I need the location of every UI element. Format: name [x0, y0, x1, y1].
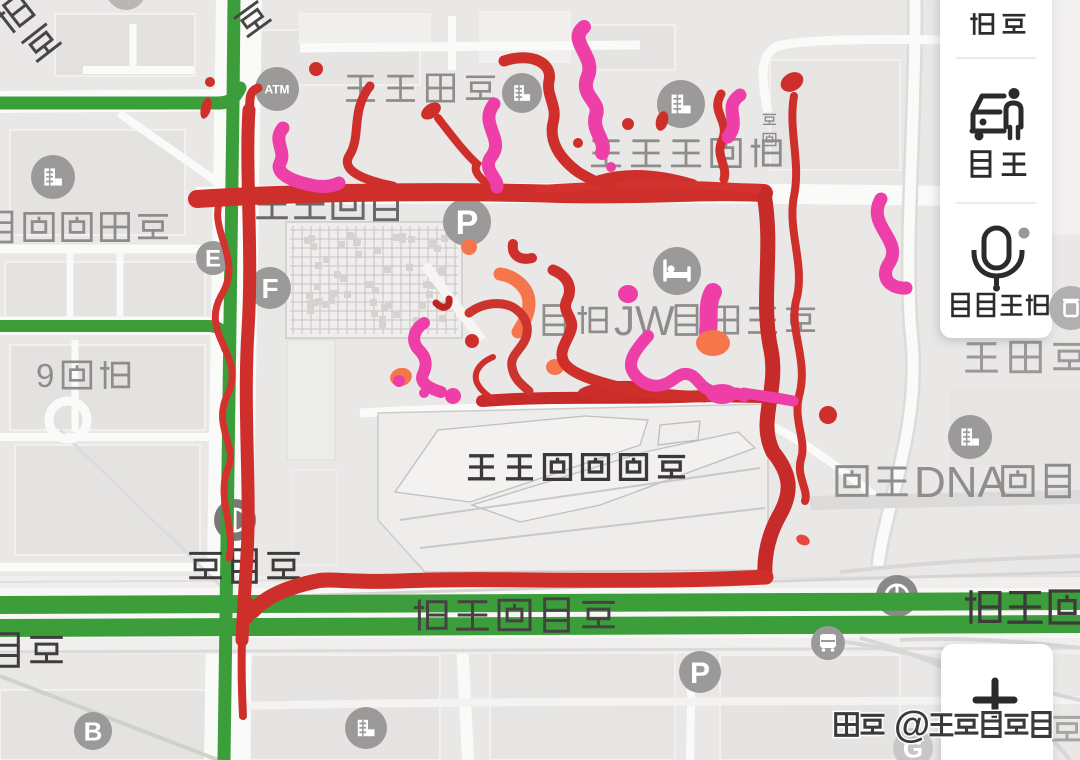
- svg-text:F: F: [261, 273, 278, 304]
- svg-text:DNA: DNA: [914, 458, 1008, 507]
- svg-text:E: E: [205, 246, 221, 273]
- svg-text:P: P: [456, 204, 479, 242]
- svg-text:9: 9: [36, 357, 54, 394]
- svg-text:@: @: [894, 704, 930, 745]
- svg-text:B: B: [84, 716, 103, 746]
- svg-text:P: P: [690, 657, 710, 690]
- svg-text:ATM: ATM: [264, 82, 289, 96]
